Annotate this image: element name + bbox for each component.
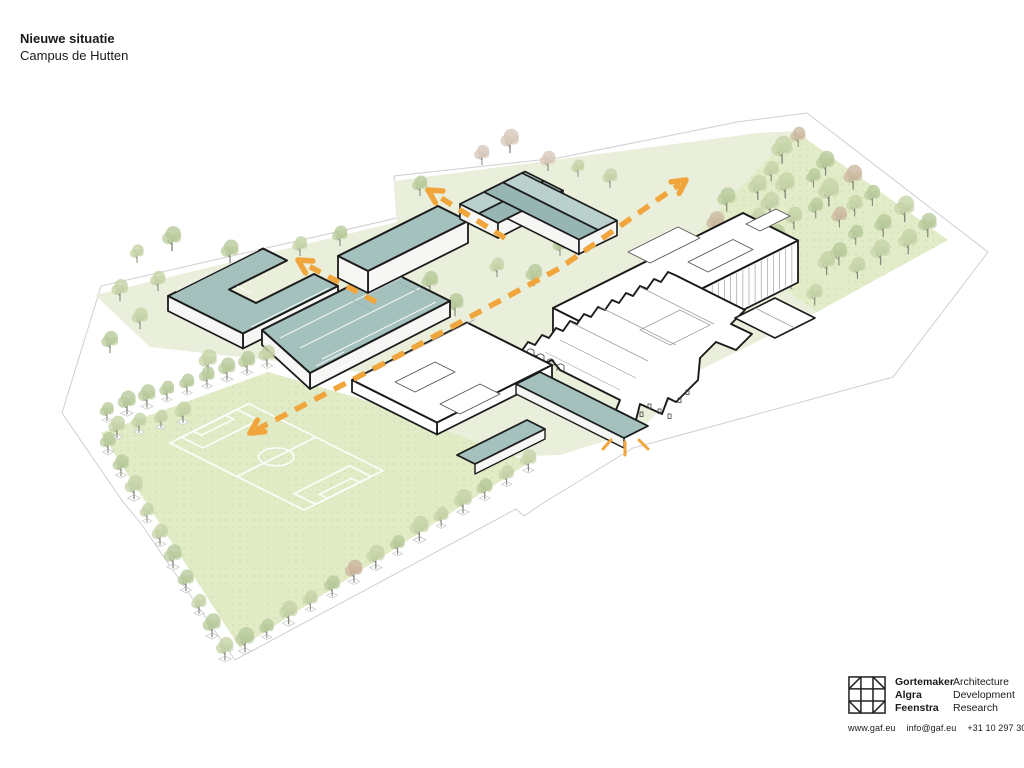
tree-icon [500, 129, 519, 154]
tree-icon [221, 239, 239, 263]
firm-contact: www.gaf.eu info@gaf.eu +31 10 297 3030 [848, 722, 1018, 735]
tree-icon [191, 594, 206, 616]
entrance-marker [603, 440, 648, 455]
site-plan-illustration [0, 0, 1024, 768]
tree-icon [113, 454, 130, 477]
tree-icon [100, 402, 114, 422]
tree-icon [162, 226, 181, 251]
website-link: www.gaf.eu [848, 722, 896, 735]
tree-icon [474, 145, 489, 165]
phone-number: +31 10 297 3030 [967, 722, 1024, 735]
email-link: info@gaf.eu [907, 722, 957, 735]
tree-icon [101, 331, 118, 353]
tree-icon [118, 390, 136, 416]
firm-name: Gortemaker Algra Feenstra [895, 676, 953, 715]
firm-services: Architecture Development Research [953, 676, 1015, 715]
tree-icon [199, 366, 215, 388]
firm-logo-block: Gortemaker Algra Feenstra Architecture D… [848, 676, 1018, 735]
tree-icon [164, 544, 182, 570]
tree-icon [138, 384, 156, 409]
tree-icon [179, 374, 194, 396]
tree-icon [216, 637, 234, 662]
tree-icon [159, 381, 174, 402]
tree-icon [218, 357, 235, 382]
tree-icon [125, 475, 143, 501]
tree-icon [130, 244, 144, 263]
tree-icon [140, 503, 155, 524]
tree-icon [178, 569, 194, 592]
gaf-logo-icon [848, 676, 886, 714]
